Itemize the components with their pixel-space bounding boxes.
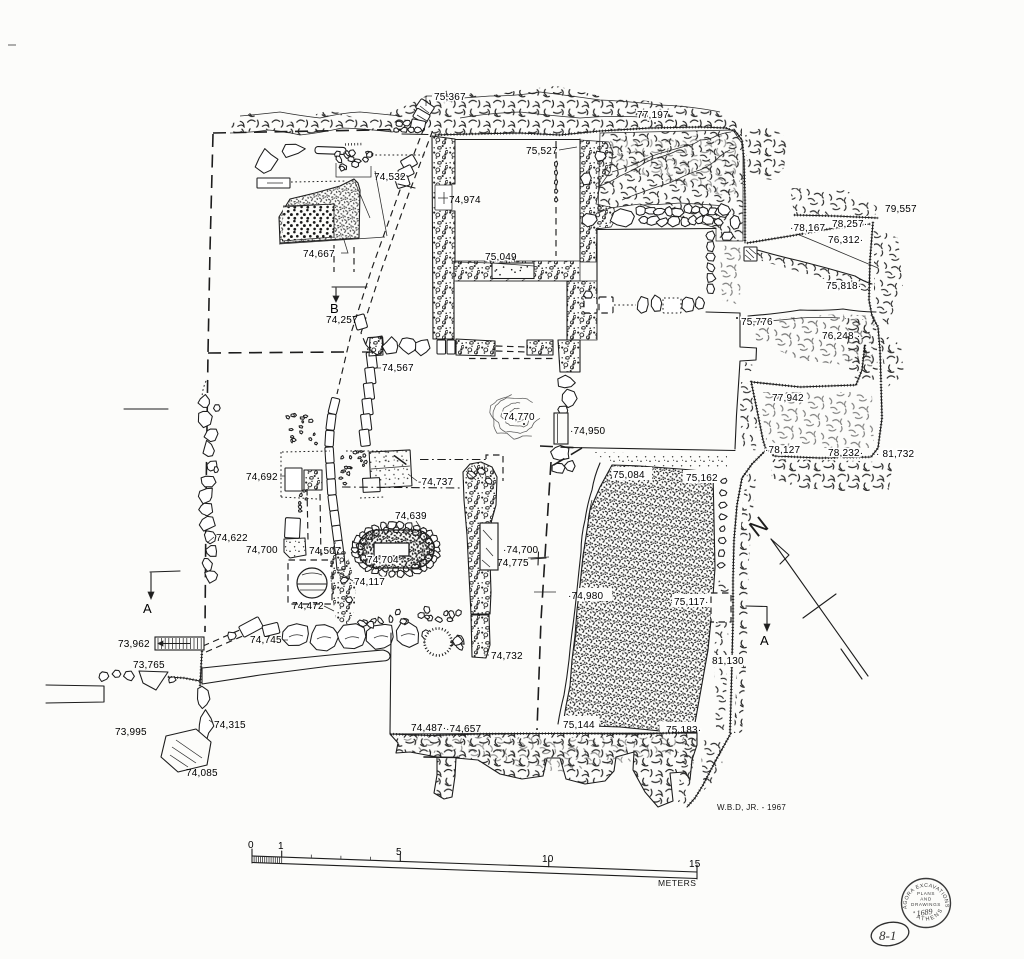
svg-text:75,367: 75,367 (434, 92, 466, 103)
svg-text:74,487·: 74,487· (411, 723, 446, 734)
svg-text:73,765: 73,765 (133, 660, 165, 671)
svg-text:-74,737: -74,737 (418, 477, 454, 488)
svg-text:·78,127: ·78,127 (765, 445, 801, 456)
svg-text:74,704: 74,704 (367, 555, 399, 566)
svg-text:76,312·: 76,312· (828, 235, 863, 246)
svg-text:74,732: 74,732 (491, 651, 523, 662)
svg-text:78,257·: 78,257· (832, 219, 867, 230)
svg-text:74,745: 74,745 (250, 635, 282, 646)
svg-text:74,117: 74,117 (354, 577, 385, 588)
svg-text:74,622: 74,622 (216, 533, 248, 544)
svg-text:8-1: 8-1 (879, 928, 896, 943)
svg-text:74,315: 74,315 (214, 720, 246, 731)
svg-text:75,162: 75,162 (686, 473, 718, 484)
svg-text:15: 15 (689, 859, 701, 870)
svg-text:75,144: 75,144 (563, 720, 595, 731)
svg-text:AND: AND (920, 897, 932, 902)
svg-text:74,692: 74,692 (246, 472, 278, 483)
svg-text:A: A (760, 633, 769, 648)
svg-text:5: 5 (396, 847, 402, 858)
svg-text:0: 0 (248, 840, 254, 851)
svg-text:75,776: 75,776 (741, 317, 773, 328)
svg-text:75,084: 75,084 (613, 470, 645, 481)
svg-text:10: 10 (542, 854, 554, 865)
svg-text:74,472: 74,472 (292, 601, 324, 612)
svg-text:74,700: 74,700 (246, 545, 278, 556)
svg-text:75,818·: 75,818· (826, 281, 861, 292)
svg-text:73,995: 73,995 (115, 727, 147, 738)
svg-text:DRAWINGS: DRAWINGS (911, 902, 941, 907)
svg-text:W.B.D, JR. - 1967: W.B.D, JR. - 1967 (717, 803, 786, 812)
svg-text:75,527: 75,527 (526, 146, 558, 157)
svg-text:·74,980: ·74,980 (568, 591, 604, 602)
svg-text:74,085: 74,085 (186, 768, 218, 779)
svg-text:75,049: 75,049 (485, 252, 517, 263)
svg-text:81,130: 81,130 (712, 656, 744, 667)
svg-text:74,974: 74,974 (449, 195, 481, 206)
svg-text:A: A (143, 601, 152, 616)
svg-text:74,532: 74,532 (374, 172, 406, 183)
svg-text:73,962: 73,962 (118, 639, 150, 650)
svg-text:PLANS: PLANS (917, 891, 935, 896)
svg-text:74,770: 74,770 (503, 412, 535, 423)
svg-text:74,257: 74,257 (326, 315, 358, 326)
svg-text:·78,167: ·78,167 (790, 223, 826, 234)
svg-text:78,232·: 78,232· (828, 448, 863, 459)
svg-text:· 81,732: · 81,732 (876, 449, 915, 460)
svg-text:METERS: METERS (658, 878, 696, 888)
svg-text:75,117·: 75,117· (674, 597, 709, 608)
svg-text:B: B (330, 301, 339, 316)
svg-text:74,639: 74,639 (395, 511, 427, 522)
svg-text:·74,700: ·74,700 (503, 545, 539, 556)
svg-text:77,197: 77,197 (637, 110, 669, 121)
svg-text:74,775: 74,775 (497, 558, 529, 569)
svg-text:74,667: 74,667 (303, 249, 335, 260)
svg-text:77,942: 77,942 (772, 393, 804, 404)
svg-text:1: 1 (278, 841, 284, 852)
svg-text:79,557: 79,557 (885, 204, 917, 215)
svg-text:·74,950: ·74,950 (570, 426, 606, 437)
svg-text:74,567: 74,567 (382, 363, 414, 374)
